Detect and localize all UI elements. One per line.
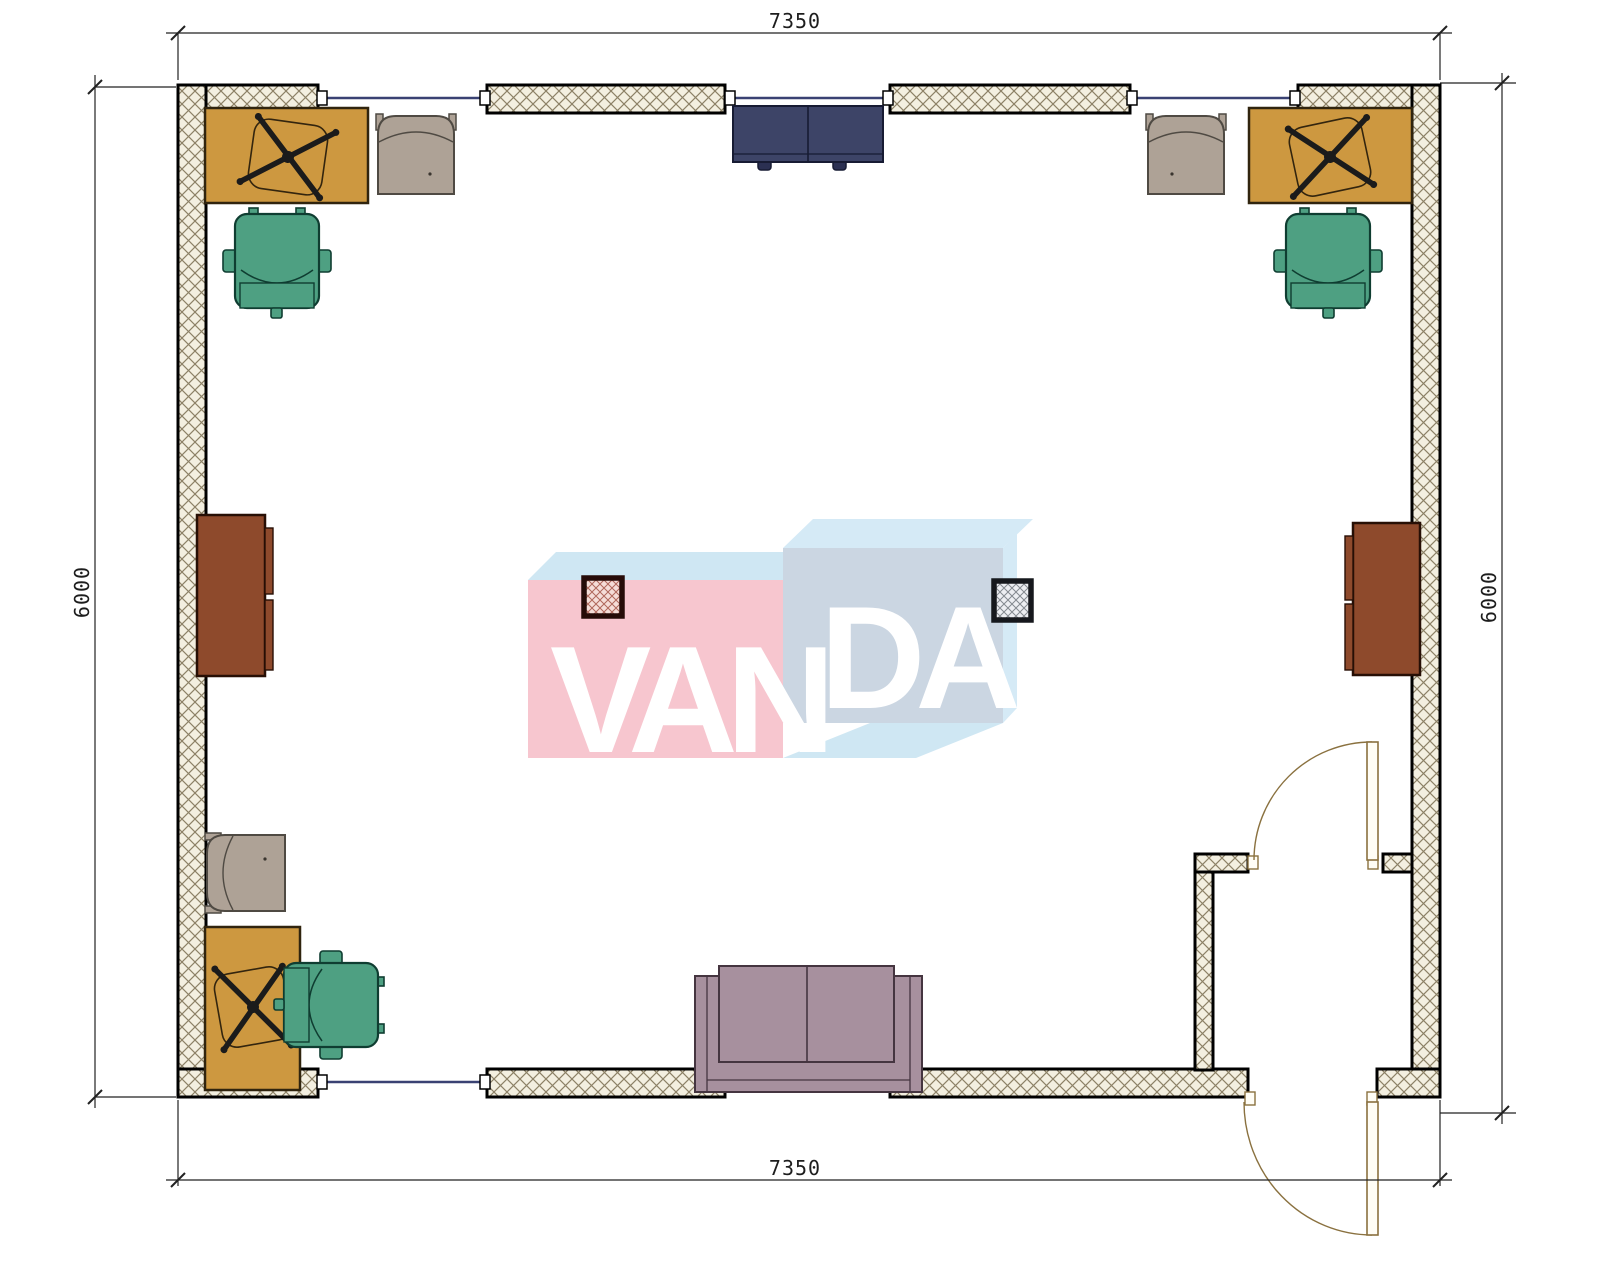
logo-pink-box-top [528,552,811,580]
wall-top-pier-1 [487,85,725,113]
cabinet-left [197,515,273,676]
entry-door-leaf [1367,1102,1378,1235]
task-chair-icon [223,208,331,318]
task-chair-icon [274,951,384,1059]
dimension-top-label: 7350 [769,9,821,33]
cabinet-right [1345,523,1420,675]
sofa-bottom [695,966,922,1092]
wall-bottom-corner-right [1377,1069,1440,1097]
workstation-top-right [1146,108,1412,318]
task-chair-icon [1274,208,1382,318]
logo-blue-box-top [783,519,1033,548]
vanda-logo-watermark: VAN DA [528,519,1033,785]
column-gray [994,581,1031,620]
wall-bottom-pier-1 [487,1069,725,1097]
floor-plan-drawing: VAN DA [0,0,1600,1280]
guest-chair-icon [1146,114,1226,194]
workstation-bottom-left [205,833,384,1090]
dimension-right-label: 6000 [1477,571,1501,623]
column-pink [584,578,622,616]
guest-chair-icon [376,114,456,194]
vestibule-wall-north-right [1383,854,1412,872]
wall-bottom-pier-2 [890,1069,1248,1097]
vestibule-wall-north-left [1195,854,1248,872]
logo-text-da: DA [820,576,1017,739]
vestibule-wall-west [1195,854,1213,1070]
interior-door [1248,742,1378,869]
entry-door [1244,1092,1378,1235]
guest-chair-icon [205,833,285,913]
vestibule-walls [1195,854,1412,1070]
interior-door-leaf [1367,742,1378,860]
floor-plan-canvas: VAN DA [0,0,1600,1280]
interior-door-swing-arc [1254,742,1372,860]
dimension-bottom-label: 7350 [769,1156,821,1180]
dimension-left-label: 6000 [70,566,94,618]
logo-text-van: VAN [550,615,826,785]
entry-door-swing-arc [1244,1102,1372,1235]
workstation-top-left [205,108,456,318]
wall-top-pier-2 [890,85,1130,113]
loveseat-top [733,106,883,170]
